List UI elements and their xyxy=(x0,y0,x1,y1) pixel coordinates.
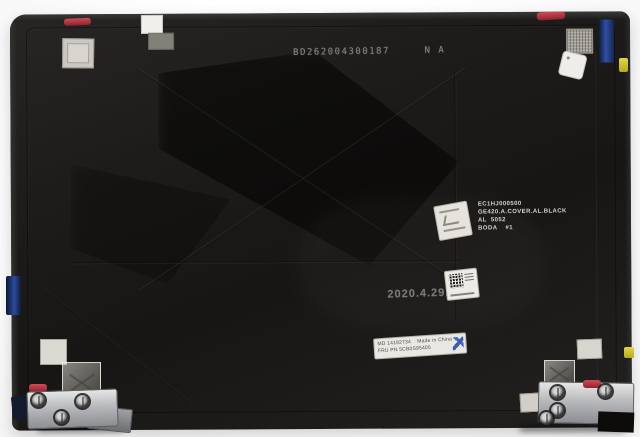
sticker-mark xyxy=(443,213,461,226)
screw-cover-pad xyxy=(62,38,94,68)
blue-logo-stamp-icon xyxy=(452,337,464,351)
hinge-screw xyxy=(55,411,68,424)
cover-left-edge xyxy=(10,15,19,431)
qr-code-icon xyxy=(448,273,463,288)
top-edge-pad xyxy=(148,33,174,50)
mold-text-line: GE420.A.COVER.AL.BLACK xyxy=(478,207,567,216)
mesh-pad xyxy=(566,29,593,54)
sticker-mark xyxy=(444,226,466,232)
qr-code-label xyxy=(444,268,480,301)
qr-label-text-lines xyxy=(464,273,474,283)
red-tape xyxy=(64,18,91,26)
hinge-screw xyxy=(32,394,45,407)
top-edge-tab xyxy=(141,15,163,34)
hinge-screw xyxy=(599,385,612,398)
screw-cover-pad xyxy=(577,339,603,360)
red-tape xyxy=(583,380,601,388)
antenna-cable-blue xyxy=(599,19,614,62)
hinge-screw xyxy=(551,404,564,417)
laptop-back-cover: BD262004300187 N A EC1HJ000500 GE420.A.C… xyxy=(10,11,632,430)
cover-right-edge xyxy=(624,11,632,427)
mold-text-line: BODA #1 xyxy=(478,223,567,232)
hinge-screw xyxy=(540,412,553,425)
qr-label-bottom-line xyxy=(450,292,474,297)
hinge-screw xyxy=(76,395,89,408)
antenna-clip-blue-left xyxy=(6,276,21,315)
mold-part-text: EC1HJ000500 GE420.A.COVER.AL.BLACK AL 50… xyxy=(478,199,567,232)
red-tape xyxy=(537,11,565,20)
small-white-sticker xyxy=(433,201,473,242)
hinge-dark-wedge xyxy=(598,411,635,432)
yellow-pull-tab xyxy=(619,58,628,72)
antenna-cable-dark-blue xyxy=(11,395,28,419)
product-photo: BD262004300187 N A EC1HJ000500 GE420.A.C… xyxy=(0,0,640,437)
yellow-pull-tab xyxy=(624,347,634,358)
hinge-screw xyxy=(551,386,564,399)
